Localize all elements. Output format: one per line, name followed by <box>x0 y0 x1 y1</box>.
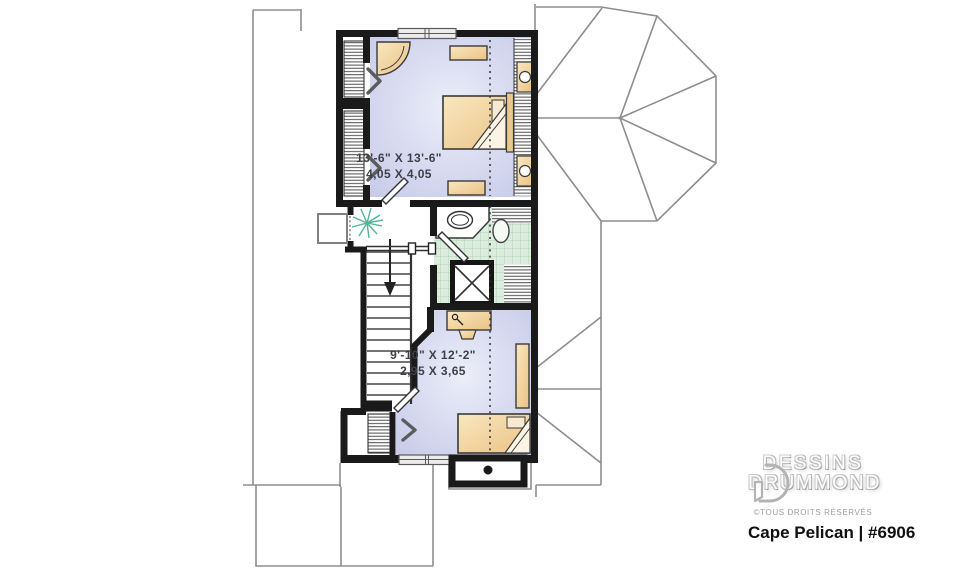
dresser <box>516 344 529 408</box>
chimney-flue-dot-icon <box>484 466 493 475</box>
branding-block: DESSINS DRUMMOND ©TOUS DROITS RÉSERVÉS C… <box>748 454 924 543</box>
plan-title: Cape Pelican | #6906 <box>748 523 924 543</box>
dormer-box <box>318 214 347 243</box>
attic-storage-hatch-3 <box>368 414 390 453</box>
floor-plan-canvas: 13'-6" X 13'-6" 4,05 X 4,05 9'-10" X 12'… <box>0 0 960 569</box>
linen-closet <box>453 263 492 304</box>
bedroom2-dimensions: 9'-10" X 12'-2" 2,95 X 3,65 <box>354 347 512 379</box>
bench-top <box>450 46 487 60</box>
window-bottom <box>399 455 455 465</box>
desk <box>447 311 491 330</box>
bedroom2-dim-imperial: 9'-10" X 12'-2" <box>354 347 512 363</box>
bedroom1-dim-imperial: 13'-6" X 13'-6" <box>320 150 478 166</box>
chimney <box>452 458 524 484</box>
plant-icon <box>352 208 383 238</box>
bench-bottom <box>448 181 485 195</box>
lamp-icon <box>520 72 531 83</box>
bedroom1-dimensions: 13'-6" X 13'-6" 4,05 X 4,05 <box>320 150 478 182</box>
lamp-icon <box>520 166 531 177</box>
desk-chair <box>459 330 476 339</box>
brand-rights: ©TOUS DROITS RÉSERVÉS <box>748 508 878 517</box>
bedroom1-dim-metric: 4,05 X 4,05 <box>320 166 478 182</box>
drummond-logo-mark-icon <box>748 456 790 508</box>
attic-storage-hatch-1 <box>344 41 364 97</box>
staircase <box>367 239 411 404</box>
window-top <box>398 29 456 39</box>
bathroom-slope-band-right <box>504 264 531 307</box>
headboard <box>507 93 514 152</box>
bedroom2-dim-metric: 2,95 X 3,65 <box>354 363 512 379</box>
stair-down-arrow-icon <box>384 239 396 296</box>
pillow <box>507 417 525 428</box>
toilet <box>493 220 509 243</box>
turret-roof <box>536 7 716 497</box>
